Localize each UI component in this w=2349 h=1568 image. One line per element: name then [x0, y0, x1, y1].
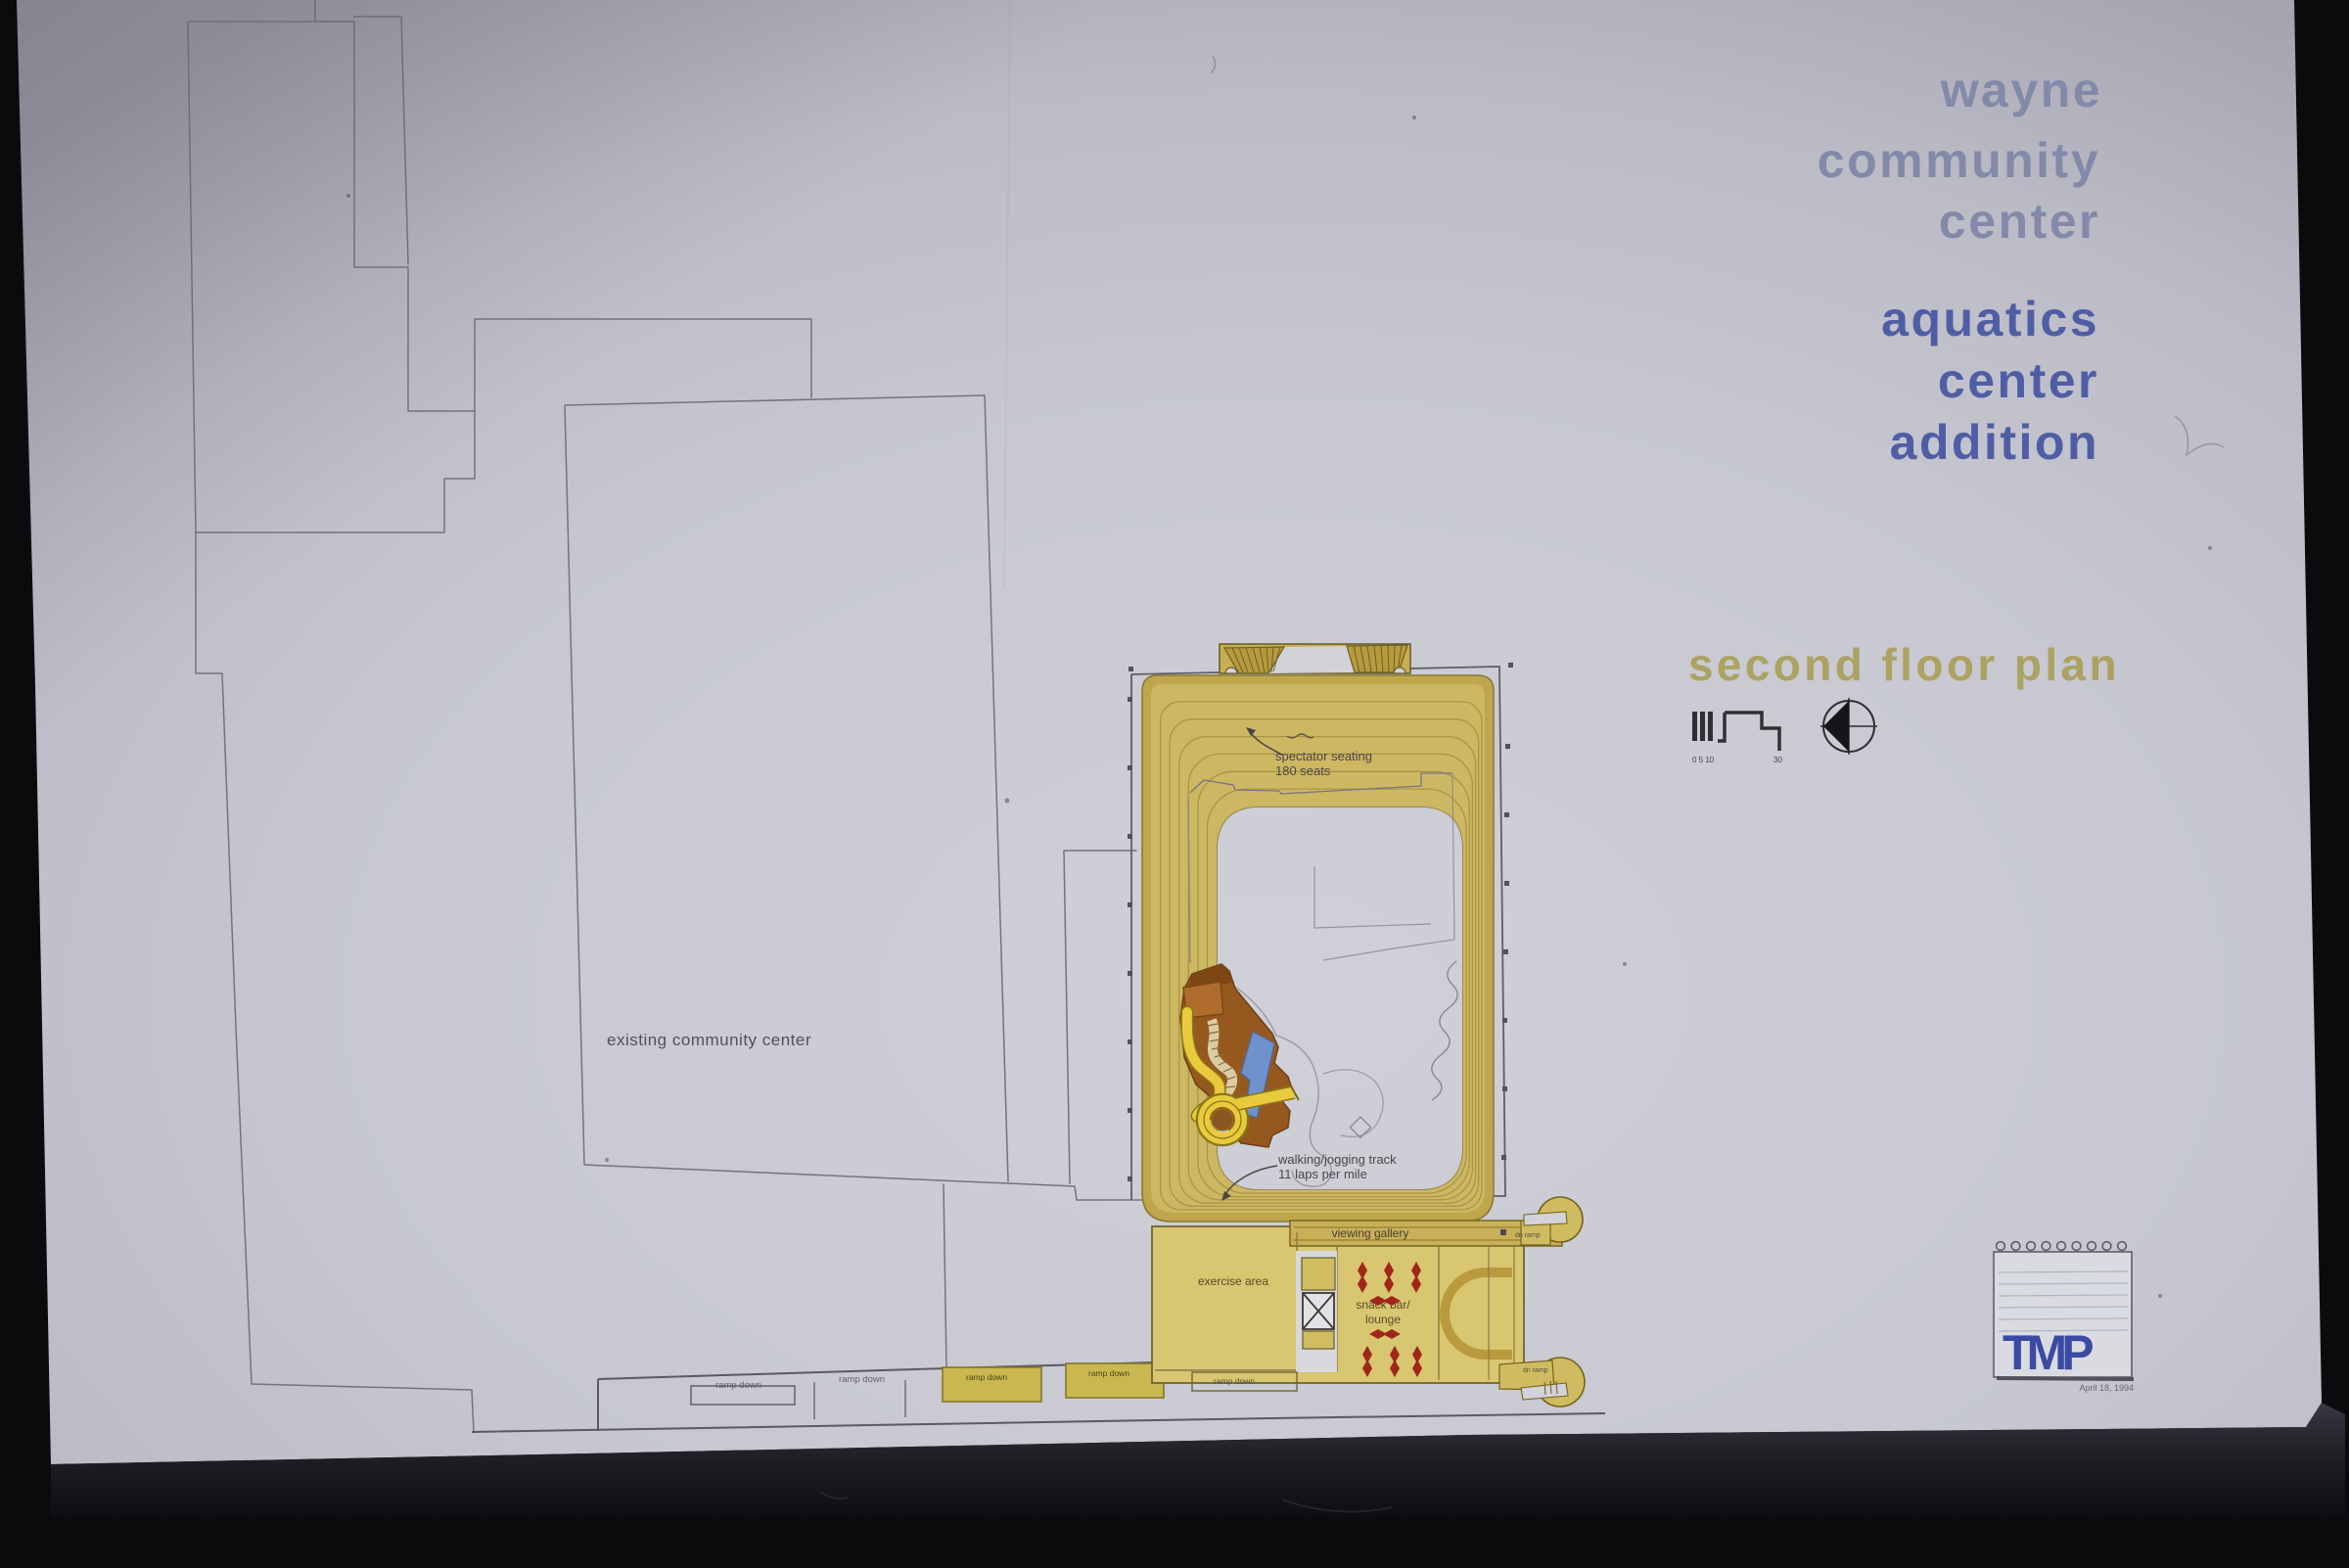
svg-text:dn ramp: dn ramp: [1515, 1232, 1541, 1239]
svg-text:viewing gallery: viewing gallery: [1332, 1226, 1409, 1240]
svg-text:TMP: TMP: [2003, 1325, 2093, 1380]
svg-text:second floor plan: second floor plan: [1688, 639, 2120, 690]
svg-text:30: 30: [1773, 756, 1782, 764]
svg-text:center: center: [1938, 353, 2099, 408]
svg-text:existing community center: existing community center: [607, 1031, 811, 1049]
svg-text:180 seats: 180 seats: [1275, 763, 1331, 778]
svg-text:ramp down: ramp down: [1088, 1368, 1129, 1378]
svg-text:community: community: [1818, 133, 2100, 188]
svg-text:ramp down: ramp down: [966, 1372, 1007, 1382]
svg-text:center: center: [1939, 194, 2100, 249]
svg-text:spectator seating: spectator seating: [1275, 749, 1372, 763]
svg-text:11 laps per mile: 11 laps per mile: [1278, 1167, 1367, 1181]
svg-text:0 5 10: 0 5 10: [1692, 756, 1715, 764]
svg-text:April 18, 1994: April 18, 1994: [2079, 1383, 2134, 1393]
svg-text:ramp down: ramp down: [715, 1380, 761, 1391]
svg-text:walking/jogging track: walking/jogging track: [1277, 1152, 1397, 1167]
svg-text:addition: addition: [1890, 415, 2099, 470]
svg-text:ramp down: ramp down: [839, 1374, 885, 1385]
svg-text:ramp down: ramp down: [1214, 1376, 1255, 1386]
svg-text:wayne: wayne: [1940, 63, 2102, 117]
svg-text:exercise area: exercise area: [1198, 1274, 1268, 1288]
svg-text:dn ramp: dn ramp: [1523, 1367, 1548, 1374]
svg-text:lounge: lounge: [1365, 1313, 1401, 1326]
svg-text:aquatics: aquatics: [1881, 292, 2099, 346]
